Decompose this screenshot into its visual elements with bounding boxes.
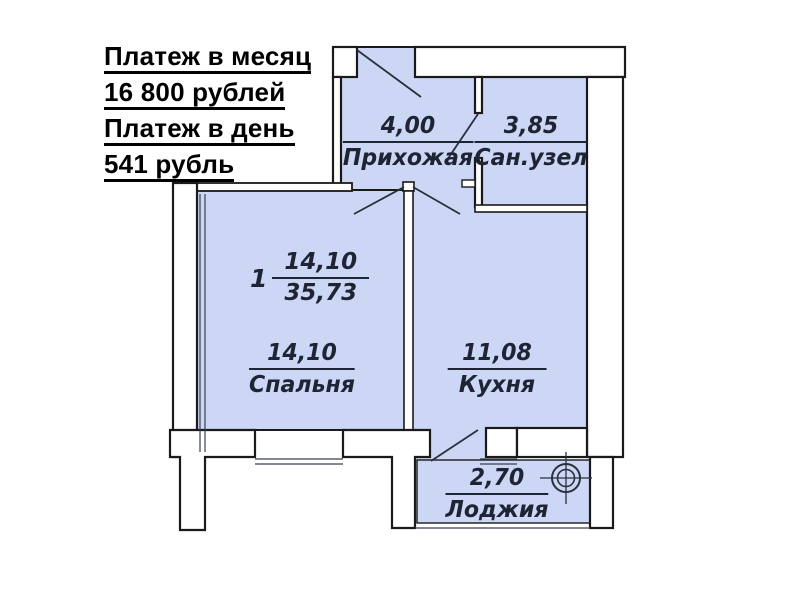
wall-central-partition (404, 191, 413, 430)
payment-line-daily-amount: 541 рубль (104, 150, 311, 182)
wall-right-exterior (587, 77, 623, 457)
wall-loggia-right (590, 457, 613, 528)
wall-hallway-left (333, 77, 341, 190)
payment-text: Платеж в месяц (104, 42, 311, 74)
room-area: 3,85 (474, 114, 587, 143)
room-area: 4,00 (343, 114, 473, 143)
wall-kitchen-pier (486, 428, 517, 457)
floor-plan-page: Платеж в месяц 16 800 рублей Платеж в де… (0, 0, 800, 600)
wall-left-exterior (173, 183, 197, 457)
wall-bath-stub (462, 180, 475, 187)
wall-partition-jamb (403, 182, 414, 191)
room-name: Сан.узел (474, 143, 587, 171)
wall-top-band (415, 47, 625, 77)
payment-text: 16 800 рублей (104, 78, 285, 110)
room-label-bedroom: 14,10 Спальня (249, 341, 355, 398)
room-name: Кухня (448, 370, 547, 398)
wall-bath-partition-top (475, 77, 482, 113)
room-label-hallway: 4,00 Прихожая (343, 114, 473, 171)
room-name: Прихожая (343, 143, 473, 171)
room-count: 1 (250, 264, 267, 293)
room-name: Лоджия (446, 495, 549, 523)
wall-bath-bottom (475, 205, 587, 212)
wall-entrance-pier (333, 47, 357, 77)
payment-line-monthly-title: Платеж в месяц (104, 42, 311, 74)
wall-pier-left (170, 430, 255, 530)
area-fraction: 14,10 35,73 (272, 250, 369, 306)
room-label-bathroom: 3,85 Сан.узел (474, 114, 587, 171)
payment-info: Платеж в месяц 16 800 рублей Платеж в де… (104, 42, 311, 186)
payment-text: 541 рубль (104, 150, 234, 182)
room-name: Спальня (249, 370, 355, 398)
living-area: 14,10 (272, 250, 369, 279)
room-area: 11,08 (448, 341, 547, 370)
wall-kitchen-bottom (517, 428, 587, 457)
room-area: 2,70 (446, 466, 549, 495)
total-area: 35,73 (272, 279, 369, 306)
payment-line-daily-title: Платеж в день (104, 114, 311, 146)
payment-line-monthly-amount: 16 800 рублей (104, 78, 311, 110)
room-label-loggia: 2,70 Лоджия (446, 466, 549, 523)
apartment-summary: 1 14,10 35,73 (250, 250, 369, 306)
payment-text: Платеж в день (104, 114, 295, 146)
room-area: 14,10 (249, 341, 355, 370)
room-label-kitchen: 11,08 Кухня (448, 341, 547, 398)
